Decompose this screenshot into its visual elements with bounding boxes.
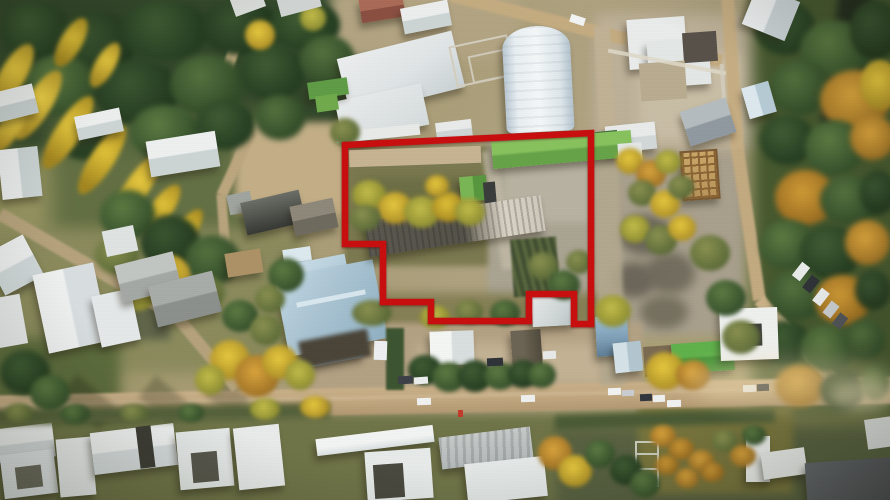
sun-glare xyxy=(830,382,890,412)
house-roof xyxy=(435,119,473,141)
car-white xyxy=(667,400,681,407)
olive-tree xyxy=(690,235,730,271)
car-white xyxy=(608,388,621,395)
dark-courtyard-roof xyxy=(682,31,718,63)
bluegray-gable-roof xyxy=(613,341,644,374)
olive-tree xyxy=(722,320,760,354)
car-dark xyxy=(398,375,414,384)
green-tree xyxy=(255,95,305,140)
olive-tree xyxy=(330,118,360,146)
conifer-tree xyxy=(240,45,305,100)
green-tree xyxy=(706,280,746,316)
yellow-tree xyxy=(595,295,631,327)
olive-tree xyxy=(255,285,285,313)
green-tree xyxy=(845,320,885,360)
hedge-bush xyxy=(60,404,90,424)
arched-warehouse xyxy=(501,24,574,133)
orange-tree xyxy=(850,115,890,160)
orchard-tree xyxy=(655,455,679,475)
green-bush xyxy=(490,300,520,326)
yellowgreen-bush xyxy=(420,305,450,329)
autumn-tree xyxy=(668,215,696,241)
olive-bush xyxy=(352,300,392,326)
olive-bush xyxy=(455,300,483,324)
car-dark xyxy=(640,394,652,401)
aerial-photo xyxy=(0,0,890,500)
car-white xyxy=(521,395,535,402)
pedestrian-red xyxy=(458,410,463,417)
car-white xyxy=(417,398,431,405)
yellowgreen-bush xyxy=(455,198,485,226)
bottom-house-court xyxy=(15,464,43,489)
green-tree xyxy=(548,270,580,300)
olive-tree xyxy=(668,175,694,199)
olive-tree xyxy=(566,250,592,274)
hedge-bush xyxy=(178,404,204,422)
orange-tree xyxy=(845,220,890,265)
bottom-house-court xyxy=(373,463,405,499)
car-white xyxy=(414,377,428,385)
house-roof xyxy=(864,416,890,449)
car-silver xyxy=(622,390,634,396)
orchard-tree xyxy=(730,445,756,467)
yellow-bush xyxy=(425,175,449,197)
bottom-house-roof xyxy=(233,424,285,490)
house-roof xyxy=(0,146,43,200)
yellow-roadside-tree xyxy=(300,396,330,418)
green-roadside-tree xyxy=(528,362,556,388)
conifer-tree xyxy=(860,170,890,215)
yellowgreen-tree xyxy=(285,360,315,390)
green-roof-building xyxy=(315,94,339,113)
olive-tree xyxy=(250,315,282,345)
hedge-bush xyxy=(120,404,148,422)
hedge-bush xyxy=(5,403,33,423)
dirt-mottle-4 xyxy=(640,295,688,329)
van-white xyxy=(374,341,388,360)
olive-bush xyxy=(350,205,380,231)
conifer-tree xyxy=(120,0,210,60)
dark-large-roof xyxy=(805,457,890,500)
orchard-tree xyxy=(742,425,766,445)
bottom-house-court xyxy=(191,451,220,483)
orchard-tree xyxy=(675,468,699,488)
autumn-tree xyxy=(655,150,681,174)
bottom-house-roof xyxy=(464,456,548,500)
car-white xyxy=(543,351,556,360)
conifer-tree xyxy=(855,270,890,310)
corner-tree xyxy=(30,375,70,411)
yellow-tree xyxy=(245,20,275,50)
car-white xyxy=(653,395,665,402)
orchard-tree xyxy=(700,462,724,482)
bottom-center-tree xyxy=(630,470,660,498)
yellow-roadside-tree xyxy=(250,398,280,420)
yellowgreen-tree xyxy=(195,365,225,395)
car-dark xyxy=(487,358,503,367)
